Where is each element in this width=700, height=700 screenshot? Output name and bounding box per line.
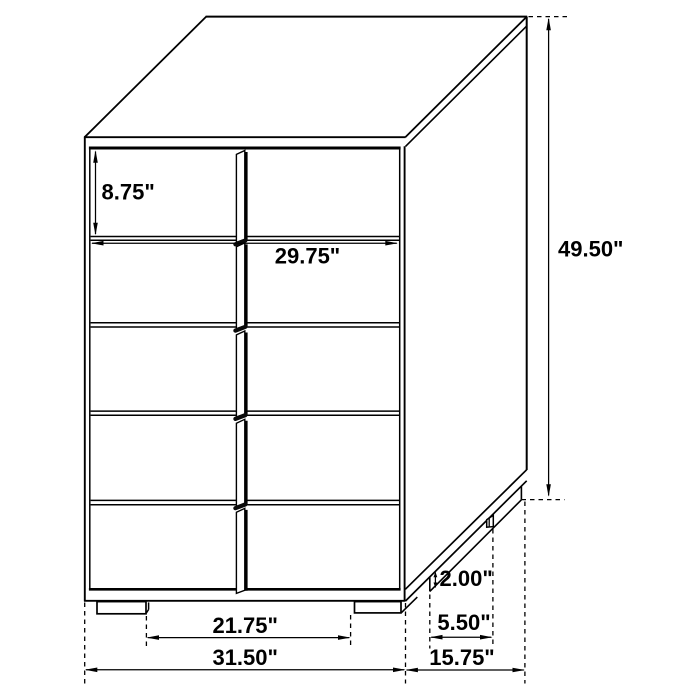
svg-text:49.50": 49.50" [558, 237, 623, 262]
svg-text:15.75": 15.75" [429, 645, 494, 670]
svg-text:31.50": 31.50" [212, 645, 277, 670]
svg-text:5.50": 5.50" [437, 610, 490, 635]
svg-text:8.75": 8.75" [102, 180, 155, 205]
svg-text:21.75": 21.75" [212, 613, 277, 638]
svg-text:2.00": 2.00" [440, 566, 493, 591]
svg-text:29.75": 29.75" [275, 244, 340, 269]
